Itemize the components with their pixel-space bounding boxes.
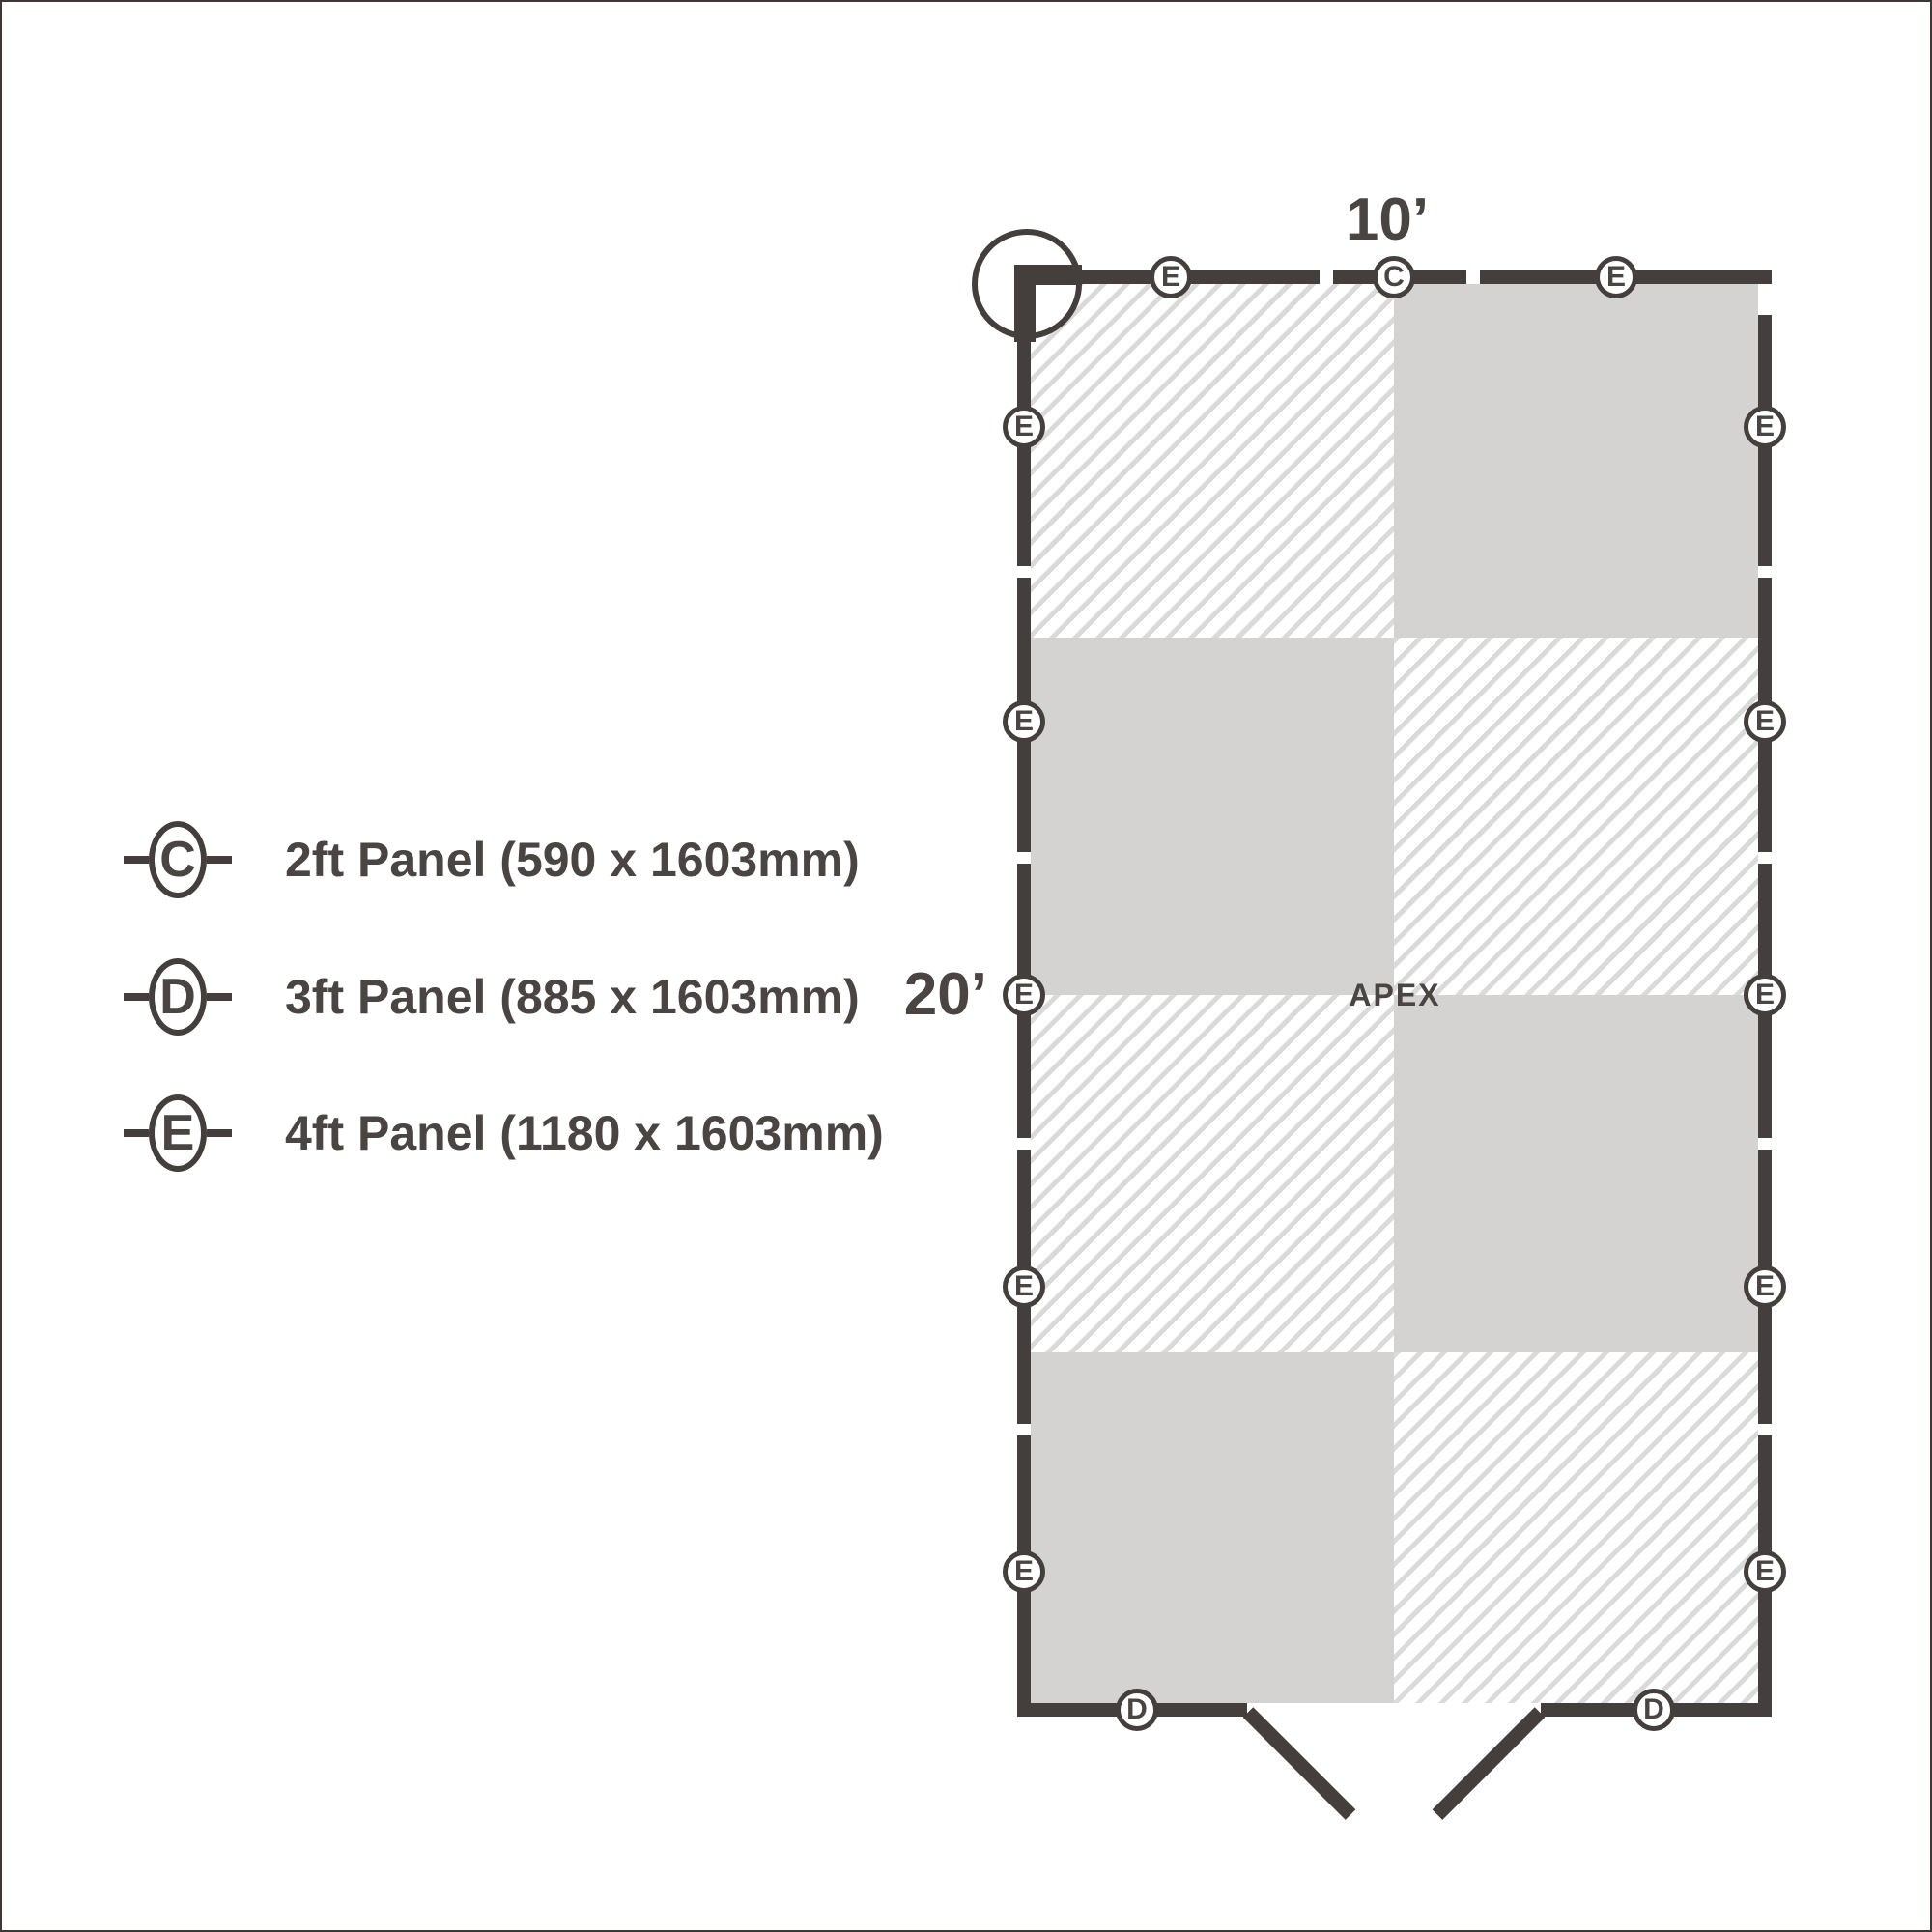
legend-dash-icon — [124, 1129, 149, 1137]
floor-cell-solid — [1394, 995, 1758, 1352]
panel-code-badge: C — [149, 821, 207, 898]
width-dimension-label: 10’ — [1291, 190, 1484, 250]
panel-marker-c-top: C — [1373, 256, 1415, 298]
floor-cell-hatched — [1031, 995, 1394, 1352]
panel-marker-d-bottom: D — [1116, 1689, 1158, 1731]
corner-post-horizontal-bar — [1036, 265, 1082, 285]
legend-label: 3ft Panel (885 x 1603mm) — [285, 969, 860, 1025]
panel-marker-e-right: E — [1744, 1265, 1786, 1308]
panel-marker-e-right: E — [1744, 700, 1786, 743]
legend-label: 2ft Panel (590 x 1603mm) — [285, 832, 860, 888]
panel-marker-e-right: E — [1744, 1550, 1786, 1593]
legend-item-3ft: D 3ft Panel (885 x 1603mm) — [124, 944, 860, 1050]
door-leaf-left — [1243, 1707, 1356, 1820]
legend-code: E — [161, 1104, 195, 1162]
floor-cell-solid — [1031, 638, 1394, 995]
wall-segment-left — [1017, 342, 1031, 566]
panel-marker-e-left: E — [1003, 1265, 1045, 1308]
floor-cell-solid — [1394, 284, 1758, 638]
legend-dash-icon — [207, 856, 232, 864]
legend-code: D — [159, 968, 196, 1026]
panel-marker-e-left: E — [1003, 974, 1045, 1016]
panel-code-badge: D — [149, 958, 207, 1036]
legend-symbol-e: E — [124, 1094, 232, 1172]
floor-cell-hatched — [1394, 1352, 1758, 1703]
floor-cell-hatched — [1031, 284, 1394, 638]
panel-marker-e-left: E — [1003, 700, 1045, 743]
panel-marker-e-top: E — [1150, 256, 1192, 298]
apex-label: APEX — [1298, 980, 1492, 1010]
legend-dash-icon — [124, 993, 149, 1001]
panel-marker-d-bottom: D — [1633, 1689, 1675, 1731]
legend-dash-icon — [124, 856, 149, 864]
floor-cell-hatched — [1394, 638, 1758, 995]
panel-code-badge: E — [149, 1094, 207, 1172]
panel-marker-e-left: E — [1003, 406, 1045, 448]
wall-segment-top — [1082, 270, 1320, 284]
legend-symbol-c: C — [124, 821, 232, 898]
legend-symbol-d: D — [124, 958, 232, 1036]
panel-marker-e-right: E — [1744, 406, 1786, 448]
legend-code: C — [159, 831, 196, 889]
panel-marker-e-top: E — [1595, 256, 1637, 298]
floor-cell-solid — [1031, 1352, 1394, 1703]
legend-dash-icon — [207, 1129, 232, 1137]
legend-label: 4ft Panel (1180 x 1603mm) — [285, 1105, 884, 1161]
corner-post-vertical-bar — [1014, 265, 1036, 342]
panel-marker-e-right: E — [1744, 974, 1786, 1016]
legend-item-2ft: C 2ft Panel (590 x 1603mm) — [124, 807, 860, 913]
door-leaf-right — [1433, 1707, 1546, 1820]
panel-marker-e-left: E — [1003, 1550, 1045, 1593]
legend-dash-icon — [207, 993, 232, 1001]
panel-layout-diagram: 10’ 20’ APEX ECEEEEEEEEEEEDD C 2ft Panel… — [0, 0, 1932, 1932]
legend-item-4ft: E 4ft Panel (1180 x 1603mm) — [124, 1080, 884, 1186]
